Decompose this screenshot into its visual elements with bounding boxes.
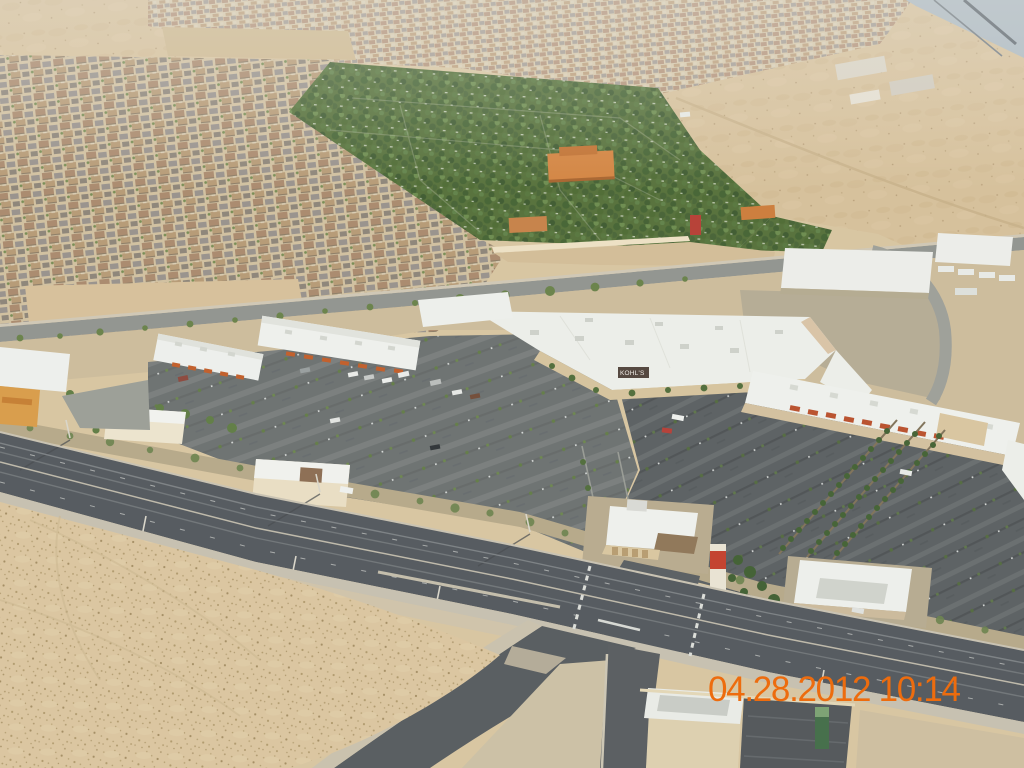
svg-text:04.28.2012 10:14: 04.28.2012 10:14 bbox=[708, 670, 961, 709]
